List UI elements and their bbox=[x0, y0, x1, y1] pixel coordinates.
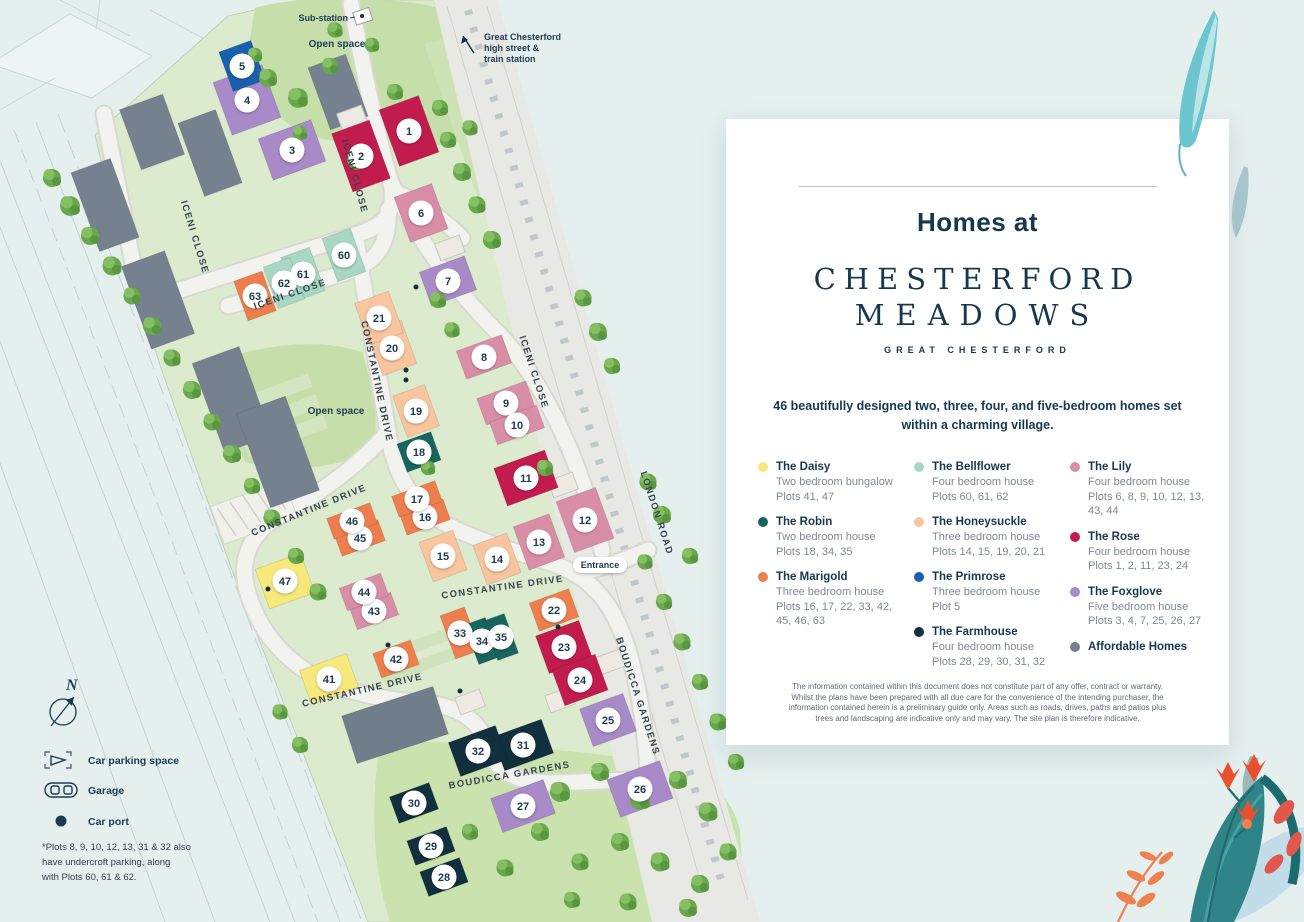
plot-marker-23[interactable]: 23 bbox=[552, 635, 577, 660]
lg-plots: Plots 3, 4, 7, 25, 26, 27 bbox=[1088, 614, 1216, 629]
plot-marker-1[interactable]: 1 bbox=[397, 119, 422, 144]
lg-plots: Plots 16, 17, 22, 33, 42, 45, 46, 63 bbox=[776, 600, 904, 629]
svg-text:46: 46 bbox=[346, 516, 358, 528]
house-type-color-dot bbox=[758, 462, 768, 472]
house-type-text: The RoseFour bedroom housePlots 1, 2, 11… bbox=[1088, 530, 1216, 574]
legend-item: The PrimroseThree bedroom housePlot 5 bbox=[914, 570, 1070, 614]
lg-name: The Bellflower bbox=[932, 460, 1060, 475]
svg-text:30: 30 bbox=[408, 798, 420, 810]
svg-text:41: 41 bbox=[323, 674, 335, 686]
plot-marker-17[interactable]: 17 bbox=[405, 487, 430, 512]
lg-name: The Honeysuckle bbox=[932, 515, 1060, 530]
plot-marker-29[interactable]: 29 bbox=[419, 834, 444, 859]
plot-marker-3[interactable]: 3 bbox=[280, 138, 305, 163]
svg-text:19: 19 bbox=[410, 406, 422, 418]
legend-item: The RobinTwo bedroom housePlots 18, 34, … bbox=[758, 515, 914, 559]
svg-text:27: 27 bbox=[517, 801, 529, 813]
lg-name: The Lily bbox=[1088, 460, 1216, 475]
svg-text:10: 10 bbox=[511, 420, 523, 432]
plot-marker-5[interactable]: 5 bbox=[230, 54, 255, 79]
lg-desc: Five bedroom house bbox=[1088, 600, 1216, 615]
lg-plots: Plot 5 bbox=[932, 600, 1060, 615]
svg-text:2: 2 bbox=[358, 151, 364, 163]
svg-text:24: 24 bbox=[574, 675, 587, 687]
lg-plots: Plots 41, 47 bbox=[776, 490, 904, 505]
entrance-label: Entrance bbox=[573, 557, 627, 573]
house-type-text: The LilyFour bedroom housePlots 6, 8, 9,… bbox=[1088, 460, 1216, 519]
svg-text:5: 5 bbox=[239, 61, 245, 73]
key-note-line3: with Plots 60, 61 & 62. bbox=[41, 872, 137, 883]
brand-name-line1: CHESTERFORD bbox=[726, 262, 1229, 296]
house-type-legend: The DaisyTwo bedroom bungalowPlots 41, 4… bbox=[758, 460, 1229, 680]
svg-text:45: 45 bbox=[354, 533, 366, 545]
info-panel: Homes at CHESTERFORD MEADOWS GREAT CHEST… bbox=[726, 119, 1229, 745]
svg-text:14: 14 bbox=[491, 554, 504, 566]
svg-text:16: 16 bbox=[419, 512, 431, 524]
plot-marker-31[interactable]: 31 bbox=[511, 733, 536, 758]
plot-marker-35[interactable]: 35 bbox=[489, 625, 514, 650]
legend-item: The BellflowerFour bedroom housePlots 60… bbox=[914, 460, 1070, 504]
open-space-label-mid: Open space bbox=[308, 406, 365, 417]
plot-marker-20[interactable]: 20 bbox=[380, 336, 405, 361]
plot-marker-33[interactable]: 33 bbox=[448, 621, 473, 646]
lg-plots: Plots 14, 15, 19, 20, 21 bbox=[932, 545, 1060, 560]
station-note-line1: Great Chesterford bbox=[484, 32, 561, 42]
lg-desc: Four bedroom house bbox=[1088, 475, 1216, 490]
carport-icon bbox=[56, 816, 67, 827]
lg-plots: Plots 6, 8, 9, 10, 12, 13, 43, 44 bbox=[1088, 490, 1216, 519]
svg-text:44: 44 bbox=[358, 587, 371, 599]
plot-marker-46[interactable]: 46 bbox=[340, 509, 365, 534]
svg-text:47: 47 bbox=[279, 576, 291, 588]
brand-name-line2: MEADOWS bbox=[726, 298, 1229, 332]
svg-text:43: 43 bbox=[368, 606, 380, 618]
svg-text:23: 23 bbox=[558, 642, 570, 654]
svg-text:Entrance: Entrance bbox=[581, 560, 620, 570]
plot-marker-24[interactable]: 24 bbox=[568, 668, 593, 693]
svg-text:7: 7 bbox=[445, 276, 451, 288]
lg-desc: Four bedroom house bbox=[932, 475, 1060, 490]
svg-text:20: 20 bbox=[386, 343, 398, 355]
plot-marker-4[interactable]: 4 bbox=[235, 88, 260, 113]
svg-text:18: 18 bbox=[413, 447, 425, 459]
station-note-line3: train station bbox=[484, 54, 536, 64]
house-type-text: The HoneysuckleThree bedroom housePlots … bbox=[932, 515, 1060, 559]
house-type-color-dot bbox=[914, 517, 924, 527]
station-note-line2: high street & bbox=[484, 43, 540, 53]
svg-text:4: 4 bbox=[244, 95, 251, 107]
plot-marker-32[interactable]: 32 bbox=[466, 739, 491, 764]
svg-text:42: 42 bbox=[390, 654, 402, 666]
svg-text:9: 9 bbox=[503, 398, 509, 410]
plot-marker-8[interactable]: 8 bbox=[472, 345, 497, 370]
substation-label: Sub-station bbox=[299, 13, 349, 23]
compass-n-label: N bbox=[65, 677, 79, 694]
house-type-color-dot bbox=[914, 572, 924, 582]
svg-text:8: 8 bbox=[481, 352, 487, 364]
lg-desc: Two bedroom house bbox=[776, 530, 904, 545]
svg-text:25: 25 bbox=[602, 715, 614, 727]
svg-text:6: 6 bbox=[418, 208, 424, 220]
plot-marker-28[interactable]: 28 bbox=[432, 865, 457, 890]
svg-text:22: 22 bbox=[548, 605, 560, 617]
house-type-text: Affordable Homes bbox=[1088, 640, 1187, 655]
svg-text:17: 17 bbox=[411, 494, 423, 506]
panel-heading: Homes at bbox=[726, 207, 1229, 238]
plot-marker-41[interactable]: 41 bbox=[317, 667, 342, 692]
plot-marker-44[interactable]: 44 bbox=[352, 580, 377, 605]
plot-marker-27[interactable]: 27 bbox=[511, 794, 536, 819]
house-type-color-dot bbox=[758, 517, 768, 527]
house-type-color-dot bbox=[914, 627, 924, 637]
house-type-color-dot bbox=[1070, 462, 1080, 472]
legend-item: The MarigoldThree bedroom housePlots 16,… bbox=[758, 570, 914, 629]
legend-item: The RoseFour bedroom housePlots 1, 2, 11… bbox=[1070, 530, 1226, 574]
lg-desc: Three bedroom house bbox=[776, 585, 904, 600]
svg-text:31: 31 bbox=[517, 740, 529, 752]
lg-desc: Two bedroom bungalow bbox=[776, 475, 904, 490]
legend-column-2: The BellflowerFour bedroom housePlots 60… bbox=[914, 460, 1070, 680]
brand-subtitle: GREAT CHESTERFORD bbox=[726, 345, 1229, 355]
disclaimer-text: The information contained within this do… bbox=[782, 682, 1174, 724]
key-note-line1: *Plots 8, 9, 10, 12, 13, 31 & 32 also bbox=[42, 842, 191, 853]
svg-text:32: 32 bbox=[472, 746, 484, 758]
house-type-text: The RobinTwo bedroom housePlots 18, 34, … bbox=[776, 515, 904, 559]
plot-marker-12[interactable]: 12 bbox=[573, 508, 598, 533]
lg-name: The Foxglove bbox=[1088, 585, 1216, 600]
svg-text:13: 13 bbox=[533, 537, 545, 549]
site-plan-page: 1234567891011121314151617181920212223242… bbox=[0, 0, 1304, 922]
house-type-text: The FoxgloveFive bedroom housePlots 3, 4… bbox=[1088, 585, 1216, 629]
plot-marker-26[interactable]: 26 bbox=[628, 777, 653, 802]
divider bbox=[799, 186, 1157, 187]
legend-item: The DaisyTwo bedroom bungalowPlots 41, 4… bbox=[758, 460, 914, 504]
plot-marker-25[interactable]: 25 bbox=[596, 708, 621, 733]
parking-space-label: Car parking space bbox=[88, 755, 179, 767]
svg-text:15: 15 bbox=[437, 551, 449, 563]
intro-text: 46 beautifully designed two, three, four… bbox=[773, 397, 1183, 435]
plot-marker-6[interactable]: 6 bbox=[409, 201, 434, 226]
carport-label: Car port bbox=[88, 816, 129, 828]
svg-text:62: 62 bbox=[278, 278, 290, 290]
open-space-label-top: Open space bbox=[309, 39, 366, 50]
svg-text:26: 26 bbox=[634, 784, 646, 796]
house-type-color-dot bbox=[1070, 587, 1080, 597]
lg-plots: Plots 28, 29, 30, 31, 32 bbox=[932, 655, 1060, 670]
house-type-color-dot bbox=[1070, 532, 1080, 542]
lg-name: The Primrose bbox=[932, 570, 1060, 585]
house-type-color-dot bbox=[914, 462, 924, 472]
legend-column-3: The LilyFour bedroom housePlots 6, 8, 9,… bbox=[1070, 460, 1226, 680]
plot-marker-7[interactable]: 7 bbox=[436, 269, 461, 294]
lg-name: The Farmhouse bbox=[932, 625, 1060, 640]
plot-marker-30[interactable]: 30 bbox=[402, 791, 427, 816]
svg-text:60: 60 bbox=[338, 250, 350, 262]
lg-name: The Daisy bbox=[776, 460, 904, 475]
legend-column-1: The DaisyTwo bedroom bungalowPlots 41, 4… bbox=[758, 460, 914, 680]
plot-marker-22[interactable]: 22 bbox=[542, 598, 567, 623]
lg-desc: Three bedroom house bbox=[932, 585, 1060, 600]
house-type-text: The MarigoldThree bedroom housePlots 16,… bbox=[776, 570, 904, 629]
legend-item: Affordable Homes bbox=[1070, 640, 1226, 655]
plot-marker-10[interactable]: 10 bbox=[505, 413, 530, 438]
svg-text:21: 21 bbox=[373, 313, 385, 325]
garage-label: Garage bbox=[88, 785, 124, 797]
legend-item: The FoxgloveFive bedroom housePlots 3, 4… bbox=[1070, 585, 1226, 629]
svg-text:28: 28 bbox=[438, 872, 450, 884]
lg-plots: Plots 18, 34, 35 bbox=[776, 545, 904, 560]
key-note-line2: have undercroft parking, along bbox=[42, 857, 170, 868]
legend-item: The FarmhouseFour bedroom housePlots 28,… bbox=[914, 625, 1070, 669]
plot-marker-18[interactable]: 18 bbox=[407, 440, 432, 465]
plot-marker-60[interactable]: 60 bbox=[332, 243, 357, 268]
plot-marker-19[interactable]: 19 bbox=[404, 399, 429, 424]
house-type-text: The DaisyTwo bedroom bungalowPlots 41, 4… bbox=[776, 460, 904, 504]
house-type-color-dot bbox=[758, 572, 768, 582]
plot-marker-11[interactable]: 11 bbox=[514, 466, 539, 491]
plot-marker-9[interactable]: 9 bbox=[494, 391, 519, 416]
plot-marker-13[interactable]: 13 bbox=[527, 530, 552, 555]
lg-name: The Robin bbox=[776, 515, 904, 530]
lg-name: The Marigold bbox=[776, 570, 904, 585]
lg-name: The Rose bbox=[1088, 530, 1216, 545]
plot-marker-42[interactable]: 42 bbox=[384, 647, 409, 672]
svg-text:12: 12 bbox=[579, 515, 591, 527]
lg-desc: Four bedroom house bbox=[932, 640, 1060, 655]
lg-desc: Three bedroom house bbox=[932, 530, 1060, 545]
plot-marker-47[interactable]: 47 bbox=[273, 569, 298, 594]
svg-text:61: 61 bbox=[297, 269, 309, 281]
plot-marker-15[interactable]: 15 bbox=[431, 544, 456, 569]
house-type-text: The BellflowerFour bedroom housePlots 60… bbox=[932, 460, 1060, 504]
house-type-color-dot bbox=[1070, 642, 1080, 652]
svg-text:35: 35 bbox=[495, 632, 507, 644]
svg-text:29: 29 bbox=[425, 841, 437, 853]
svg-text:33: 33 bbox=[454, 628, 466, 640]
plot-marker-14[interactable]: 14 bbox=[485, 547, 510, 572]
svg-text:34: 34 bbox=[476, 636, 489, 648]
svg-text:11: 11 bbox=[520, 473, 532, 485]
lg-plots: Plots 1, 2, 11, 23, 24 bbox=[1088, 559, 1216, 574]
house-type-text: The FarmhouseFour bedroom housePlots 28,… bbox=[932, 625, 1060, 669]
legend-item: The HoneysuckleThree bedroom housePlots … bbox=[914, 515, 1070, 559]
svg-text:3: 3 bbox=[289, 145, 295, 157]
house-type-text: The PrimroseThree bedroom housePlot 5 bbox=[932, 570, 1060, 614]
lg-desc: Four bedroom house bbox=[1088, 545, 1216, 560]
lg-name: Affordable Homes bbox=[1088, 640, 1187, 655]
lg-plots: Plots 60, 61, 62 bbox=[932, 490, 1060, 505]
legend-item: The LilyFour bedroom housePlots 6, 8, 9,… bbox=[1070, 460, 1226, 519]
svg-text:1: 1 bbox=[406, 126, 412, 138]
